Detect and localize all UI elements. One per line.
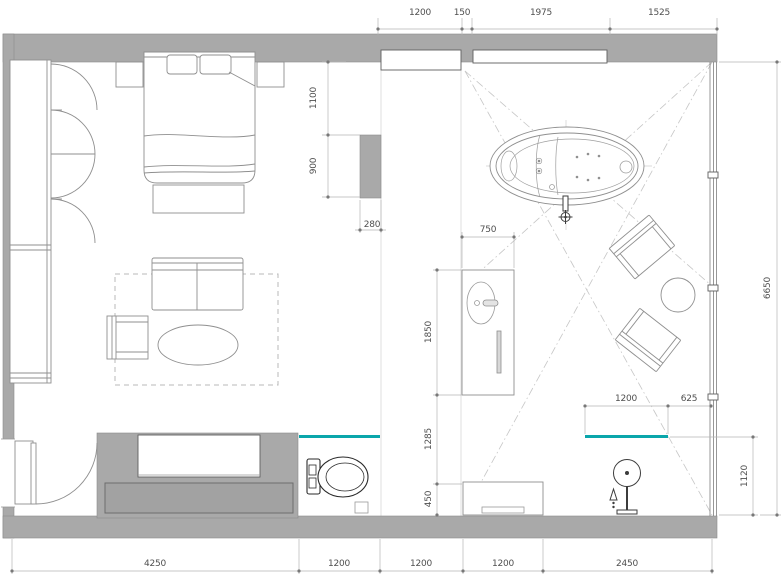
dim-label: 625 — [681, 394, 698, 404]
dim-chain-middle: 1850 1285 450 — [424, 268, 462, 516]
sofa — [152, 258, 243, 310]
dim-partition: 280 — [355, 200, 386, 233]
dim-chain-bottom: 4250 1200 1200 1200 2450 — [10, 539, 713, 574]
tv-console — [105, 483, 293, 513]
shower-base — [617, 510, 637, 514]
window-wall — [708, 62, 718, 516]
pillow — [167, 55, 197, 74]
entry-door — [1, 439, 97, 507]
window-mullion — [708, 394, 718, 400]
towel-bar — [497, 331, 501, 373]
lounge-chair — [609, 215, 675, 279]
floor-plan-drawing: 1200 150 1975 1525 4250 1200 1200 1200 2… — [0, 0, 781, 576]
nightstand-left — [116, 62, 143, 87]
dim-room-height: 6650 — [719, 60, 781, 516]
tv-wall — [97, 433, 298, 518]
window-mullion — [708, 172, 718, 178]
lounge-chair — [615, 308, 681, 372]
dim-label: 1200 — [492, 559, 515, 569]
partition-stub — [360, 135, 381, 198]
bed-bench — [153, 185, 244, 213]
door-threshold — [15, 441, 33, 504]
wardrobe-door-swing — [51, 199, 95, 243]
wardrobe-door-swing — [51, 64, 97, 110]
wardrobe — [10, 60, 97, 383]
hand-shower — [610, 489, 617, 500]
nightstand-right — [257, 62, 284, 87]
shower-bench — [463, 482, 543, 515]
coffee-table — [158, 325, 238, 365]
dim-label: 1285 — [424, 428, 434, 450]
floor-drain — [355, 502, 368, 513]
side-table — [661, 278, 695, 312]
double-bed — [144, 52, 255, 183]
wall-bottom — [3, 516, 717, 538]
dim-label: 150 — [454, 8, 471, 18]
dim-label: 1200 — [328, 559, 351, 569]
dim-label: 750 — [480, 225, 497, 235]
dim-label: 4250 — [144, 559, 167, 569]
dim-chain-top: 1200 150 1975 1525 — [376, 8, 718, 35]
door-swing — [36, 443, 97, 504]
dim-label: 1120 — [740, 464, 750, 487]
dim-label: 450 — [424, 490, 434, 507]
toilet — [307, 457, 368, 497]
dim-label: 1100 — [309, 86, 319, 109]
faucet-handle — [483, 300, 498, 306]
shower-column — [610, 460, 641, 515]
dim-label: 2450 — [616, 559, 639, 569]
dim-label: 1850 — [424, 320, 434, 343]
dim-label: 1525 — [648, 8, 670, 18]
pillow — [200, 55, 231, 74]
tv-niche — [138, 435, 260, 477]
floor-plan: 1200 150 1975 1525 4250 1200 1200 1200 2… — [0, 0, 781, 576]
dim-glass-height: 1120 — [670, 435, 758, 516]
dim-label: 6650 — [763, 276, 773, 299]
dim-label: 1200 — [615, 394, 638, 404]
closet-niche — [381, 50, 461, 70]
bathtub — [486, 120, 652, 230]
window-mullion — [708, 285, 718, 291]
door-leaf — [31, 443, 36, 504]
wall-top — [3, 34, 717, 62]
dim-label: 1200 — [409, 8, 432, 18]
dim-label: 1975 — [530, 8, 552, 18]
glass-partition-toilet — [299, 435, 380, 438]
dim-label: 1200 — [410, 559, 433, 569]
vanity — [462, 270, 514, 395]
dim-label: 900 — [309, 157, 319, 174]
dim-label: 280 — [364, 220, 381, 230]
dim-chain-left: 1100 900 — [309, 60, 360, 198]
glass-partition-shower — [585, 435, 668, 438]
armchair — [107, 316, 148, 359]
bath-niche — [473, 50, 607, 63]
